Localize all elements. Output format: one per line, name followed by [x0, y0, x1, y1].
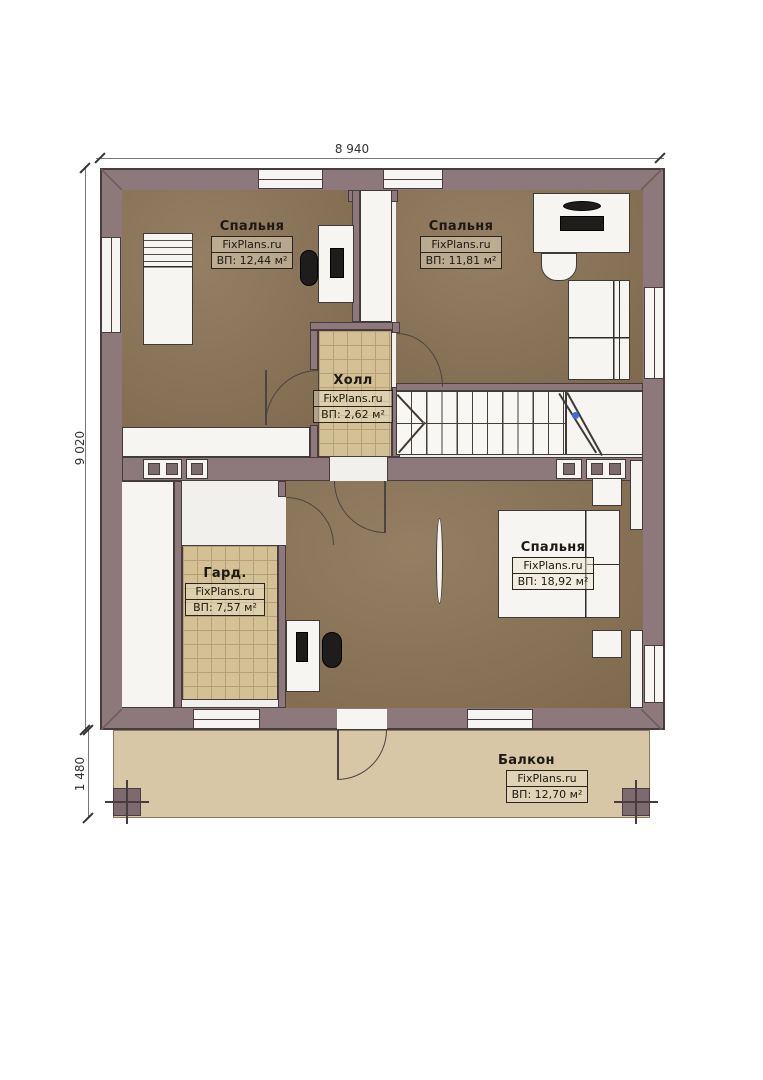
watermark: FixPlans.ru	[314, 391, 392, 407]
door-leaf	[337, 730, 339, 780]
glass-block-panel	[586, 459, 626, 479]
wall-corner-brace	[641, 169, 662, 190]
bed-single	[143, 233, 193, 345]
room-info-box: FixPlans.ru ВП: 12,44 м²	[211, 236, 294, 269]
room-label-bedroom-top-left: Спальня FixPlans.ru ВП: 12,44 м²	[196, 219, 308, 269]
room-name: Балкон	[494, 753, 600, 768]
room-area: ВП: 12,70 м²	[507, 787, 588, 802]
wall-hall-left-upper	[310, 330, 318, 370]
closet-between-bedrooms	[360, 190, 392, 322]
glass-block	[609, 463, 621, 475]
window	[467, 709, 533, 729]
wall-corner-brace	[641, 709, 662, 730]
closet-strip-corridor	[122, 427, 310, 457]
watermark: FixPlans.ru	[513, 558, 594, 574]
room-name: Спальня	[196, 219, 308, 234]
room-info-box: FixPlans.ru ВП: 2,62 м²	[313, 390, 393, 423]
room-name: Гард.	[178, 566, 272, 581]
wall-hall-top	[310, 322, 400, 330]
glass-block	[591, 463, 603, 475]
room-label-wardrobe: Гард. FixPlans.ru ВП: 7,57 м²	[178, 566, 272, 616]
floor-plan: 8 940 9 020 1 480	[0, 0, 763, 1080]
wall-wardrobe-right-lower	[278, 545, 286, 708]
wall-corner-brace	[101, 169, 122, 190]
printer	[563, 201, 601, 211]
room-area: ВП: 18,92 м²	[513, 574, 594, 589]
ceiling-fixture	[436, 518, 443, 604]
computer	[560, 216, 604, 231]
watermark: FixPlans.ru	[212, 237, 293, 253]
dimension-label-side: 9 020	[73, 418, 87, 478]
balcony-door-opening	[337, 709, 387, 729]
glass-block	[148, 463, 160, 475]
room-info-box: FixPlans.ru ВП: 12,70 м²	[506, 770, 589, 803]
dimension-line-balcony	[88, 730, 89, 818]
room-name: Холл	[306, 373, 400, 388]
room-area: ВП: 12,44 м²	[212, 253, 293, 268]
post-axis-line	[635, 780, 637, 824]
window	[193, 709, 260, 729]
glass-block-panel	[556, 459, 582, 479]
dimension-line-top	[96, 158, 664, 159]
glass-block	[563, 463, 575, 475]
room-info-box: FixPlans.ru ВП: 7,57 м²	[185, 583, 265, 616]
computer	[330, 248, 344, 278]
watermark: FixPlans.ru	[186, 584, 264, 600]
room-label-balcony: Балкон FixPlans.ru ВП: 12,70 м²	[494, 753, 600, 803]
wall-hall-right-upper	[392, 322, 400, 333]
window	[644, 645, 664, 703]
room-area: ВП: 7,57 м²	[186, 600, 264, 615]
room-area: ВП: 11,81 м²	[421, 253, 502, 268]
wall-corner-brace	[101, 709, 122, 730]
room-info-box: FixPlans.ru ВП: 18,92 м²	[512, 557, 595, 590]
computer	[296, 632, 308, 662]
wall-niche	[630, 630, 643, 708]
glass-block-panel	[143, 459, 182, 479]
nightstand	[592, 478, 622, 506]
room-name: Спальня	[502, 540, 604, 555]
room-area: ВП: 2,62 м²	[314, 407, 392, 422]
door-leaf	[384, 481, 386, 533]
room-info-box: FixPlans.ru ВП: 11,81 м²	[420, 236, 503, 269]
chair	[322, 632, 342, 668]
post-axis-line	[126, 780, 128, 824]
stair-marker-dot	[572, 412, 579, 419]
door-leaf	[265, 370, 267, 425]
glass-block	[166, 463, 178, 475]
nightstand	[592, 630, 622, 658]
dimension-label-top: 8 940	[322, 142, 382, 156]
room-label-hall: Холл FixPlans.ru ВП: 2,62 м²	[306, 373, 400, 423]
closet-strip-bottom-left	[122, 481, 174, 708]
glass-block-panel	[186, 459, 208, 479]
wall-wardrobe-right-upper	[278, 481, 286, 497]
window	[101, 237, 121, 333]
glass-block	[191, 463, 203, 475]
watermark: FixPlans.ru	[507, 771, 588, 787]
window	[644, 287, 664, 379]
bed-single	[568, 280, 630, 380]
chair	[541, 253, 577, 281]
wall-niche	[630, 460, 643, 530]
room-label-bedroom-top-right: Спальня FixPlans.ru ВП: 11,81 м²	[406, 219, 516, 269]
balcony-post	[113, 788, 141, 816]
watermark: FixPlans.ru	[421, 237, 502, 253]
window	[383, 169, 443, 189]
balcony-post	[622, 788, 650, 816]
room-label-bedroom-bottom: Спальня FixPlans.ru ВП: 18,92 м²	[502, 540, 604, 590]
dimension-label-balcony: 1 480	[73, 744, 87, 804]
wall-hall-left-lower	[310, 425, 318, 458]
window	[258, 169, 323, 189]
room-name: Спальня	[406, 219, 516, 234]
